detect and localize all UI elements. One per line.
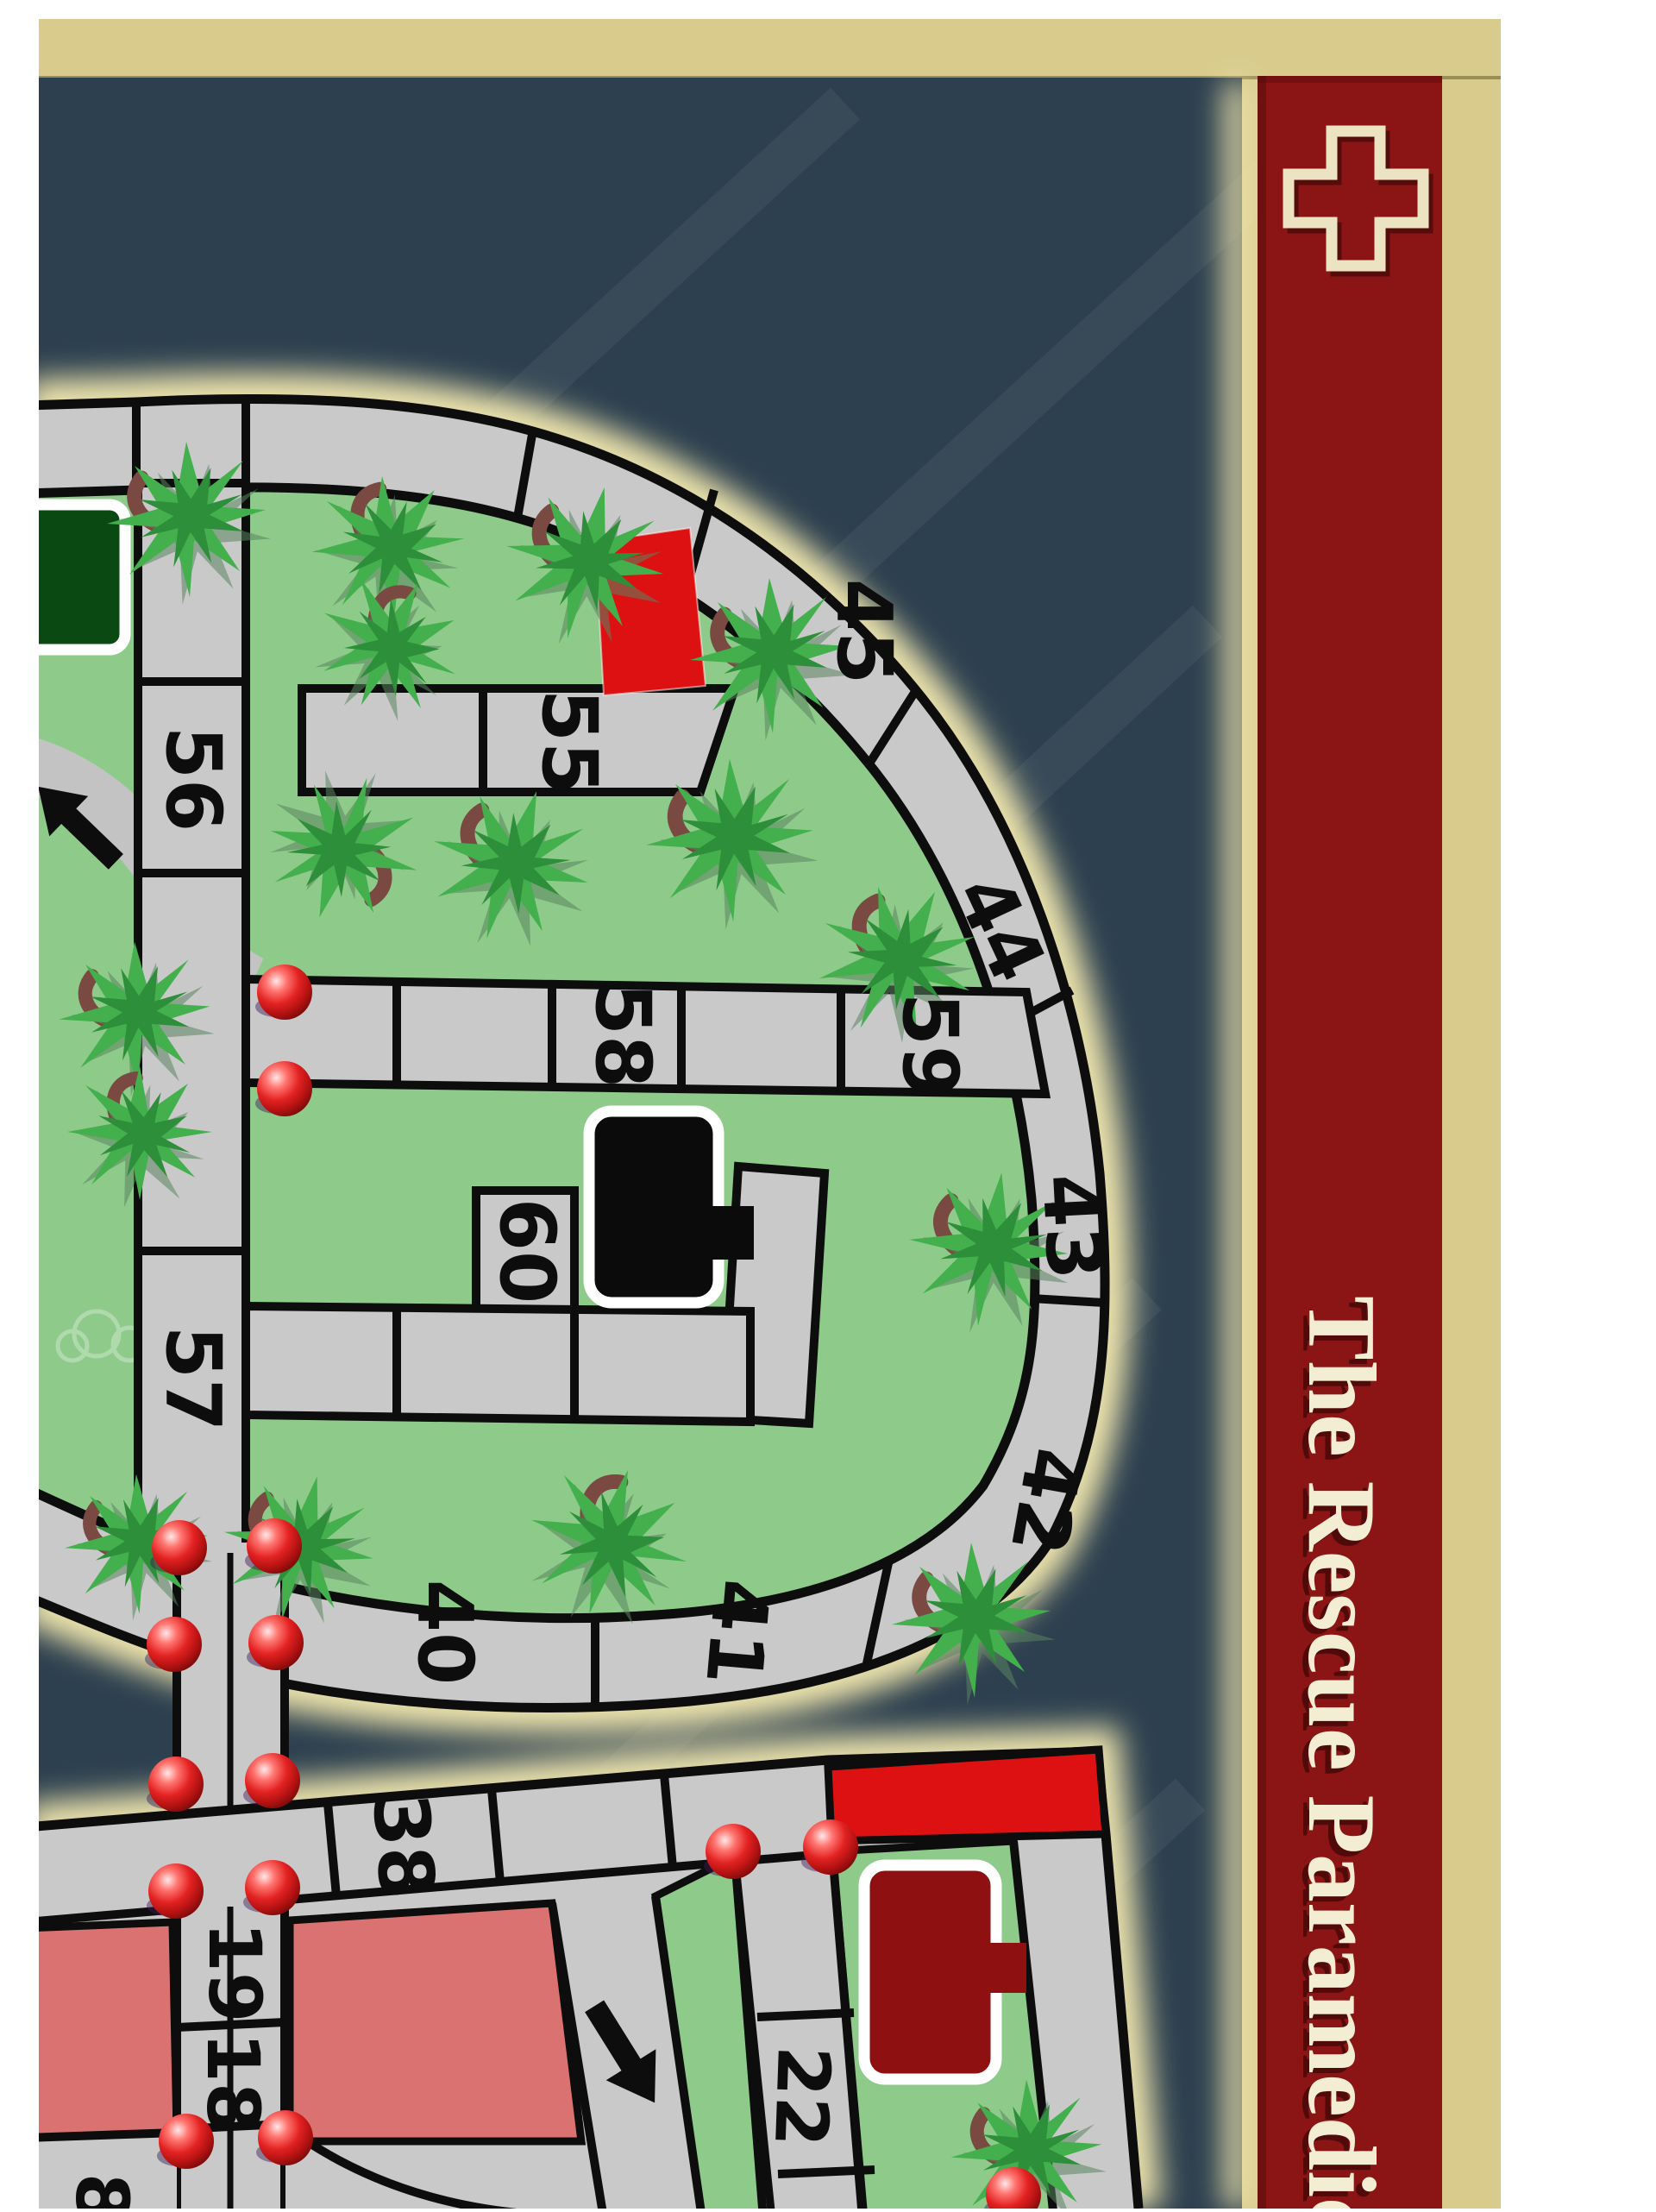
space-label-41: 41 (688, 1576, 786, 1689)
space-label-8: 8 (60, 2173, 144, 2209)
pink-zone-left (26, 1922, 177, 2138)
space-label-57: 57 (149, 1326, 238, 1431)
road-55 (302, 688, 735, 792)
space-label-55: 55 (525, 689, 614, 795)
space-label-43: 43 (1025, 1172, 1119, 1282)
pink-zone-middle (290, 1903, 581, 2141)
sidebar-title: The Rescue Paramedic (1288, 1296, 1395, 2209)
space-label-18: 18 (191, 2033, 275, 2133)
road-south-of-building (246, 1306, 750, 1422)
space-label-58: 58 (579, 983, 668, 1088)
space-label-59: 59 (886, 993, 975, 1098)
space-label-22: 22 (758, 2045, 846, 2148)
space-label-60: 60 (483, 1198, 572, 1304)
space-label-19: 19 (192, 1922, 277, 2023)
sidebar: The Rescue Paramedic The Rescue Paramedi… (1258, 76, 1442, 2209)
game-board-map: 45 55 56 44 58 59 43 60 57 42 41 40 38 1… (0, 0, 1656, 2209)
space-label-56: 56 (149, 726, 238, 832)
space-label-40: 40 (401, 1580, 490, 1685)
space-label-45: 45 (820, 579, 909, 684)
space-label-38: 38 (355, 1790, 451, 1901)
space-label-42: 42 (994, 1442, 1100, 1561)
page: 45 55 56 44 58 59 43 60 57 42 41 40 38 1… (0, 0, 1656, 2209)
red-strip (828, 1750, 1106, 1841)
